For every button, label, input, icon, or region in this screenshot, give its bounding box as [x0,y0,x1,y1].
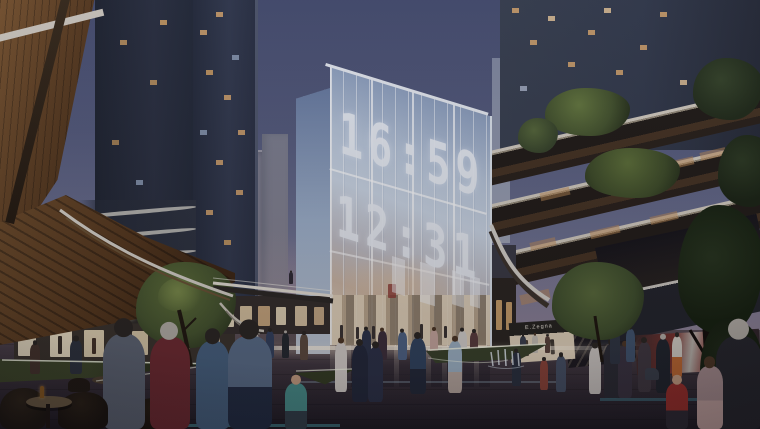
fountain-basin [488,366,524,369]
left-tree-branch [184,318,196,330]
foreground-tree-foliage [678,205,760,335]
led-edge-right-planter [428,344,546,350]
rendering-canvas: 16:59 12:31 Swarovski E.Zegna [0,0,760,429]
fountain-jet [512,351,513,365]
fountain-jet [518,353,519,366]
right-tree-trunk [595,316,602,362]
fountain-jet [498,350,499,365]
toddler-red-shirt [666,383,688,429]
pedestrian-denim-man [228,336,272,429]
bottle-on-table [40,386,44,398]
canopy-rim [60,210,233,296]
fountain-jet [505,349,506,366]
led-edge-center-planter [296,369,352,371]
child-teal-shirt [285,383,307,429]
girl-pink [697,366,723,429]
pedestrian-blue-jacket [196,341,230,429]
pedestrian-beanie-man [103,334,145,429]
right-walkway-parapet [491,225,549,300]
led-edge-right-planter-low [428,358,508,363]
cafe-table-leg [46,404,50,428]
fountain-jet [491,352,493,366]
pedestrian-maroon-coat-woman [150,337,190,429]
